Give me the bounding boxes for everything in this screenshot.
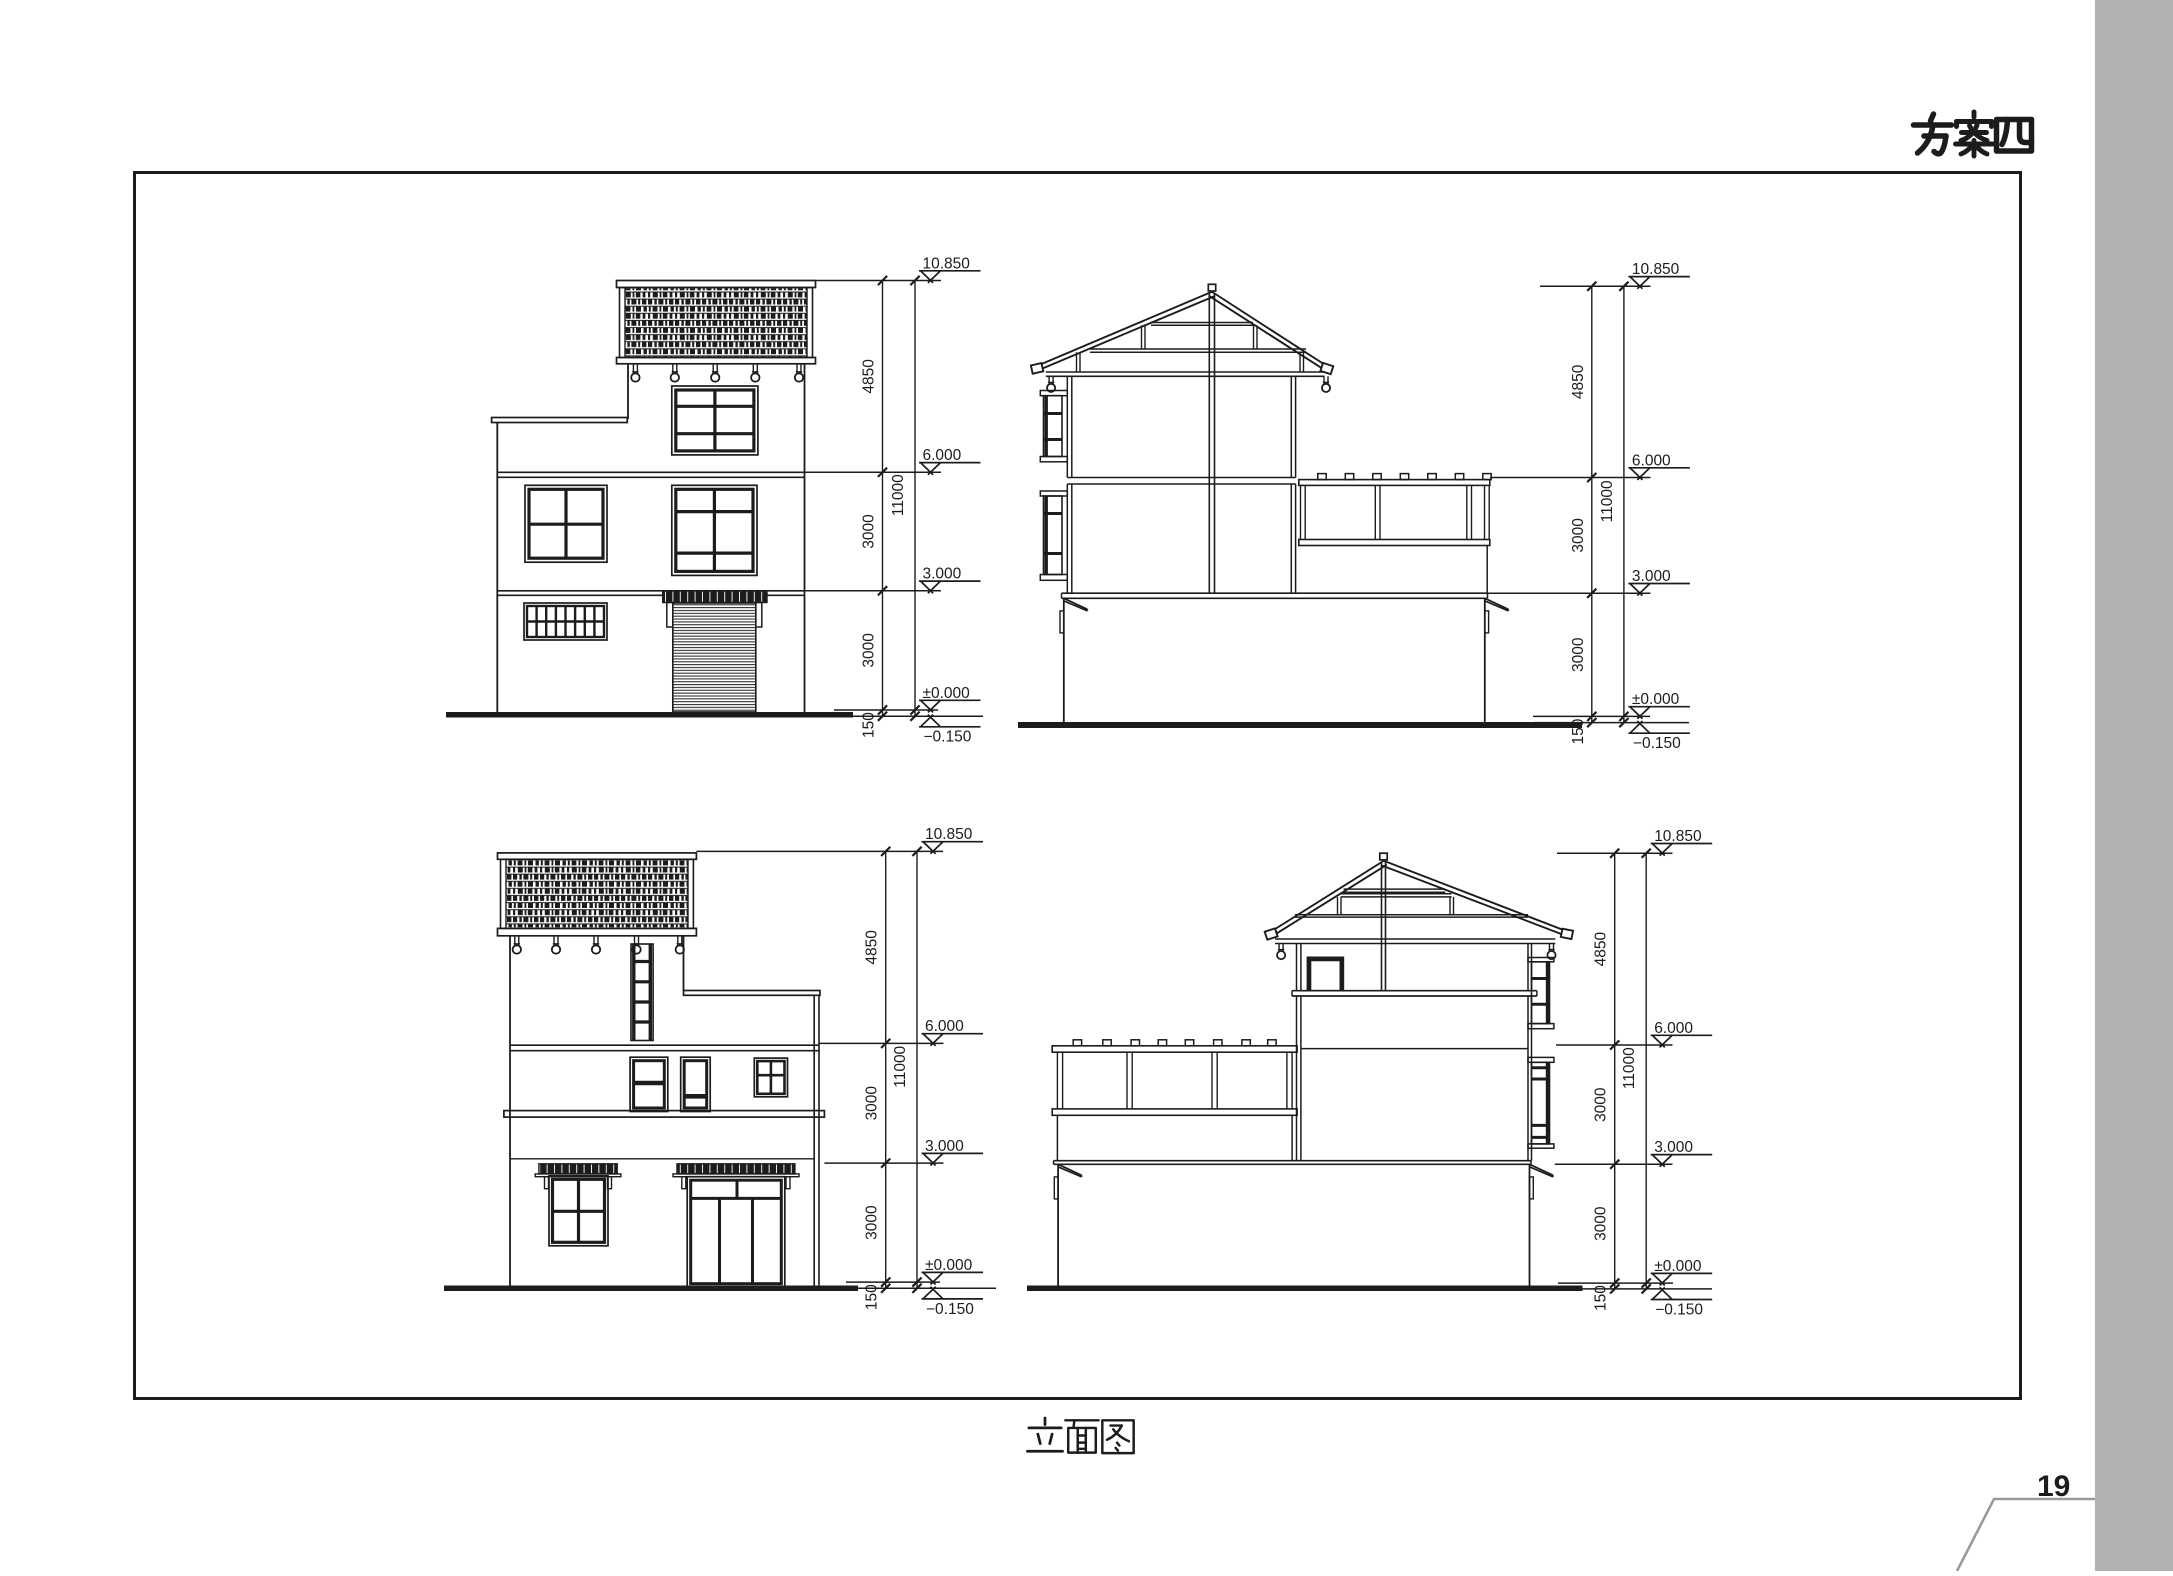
svg-text:6.000: 6.000 — [1632, 452, 1671, 469]
svg-text:−0.150: −0.150 — [1633, 735, 1681, 752]
svg-text:11000: 11000 — [890, 474, 907, 516]
svg-text:3000: 3000 — [864, 1205, 881, 1240]
svg-text:3000: 3000 — [861, 514, 878, 549]
svg-text:3000: 3000 — [1593, 1087, 1610, 1122]
svg-text:3000: 3000 — [1593, 1206, 1610, 1241]
svg-text:±0.000: ±0.000 — [925, 1257, 973, 1274]
svg-text:10.850: 10.850 — [1654, 828, 1702, 845]
svg-text:11000: 11000 — [1621, 1047, 1638, 1089]
svg-text:150: 150 — [861, 712, 878, 738]
svg-text:4850: 4850 — [861, 359, 878, 394]
svg-text:3.000: 3.000 — [1654, 1139, 1693, 1156]
svg-text:3.000: 3.000 — [1632, 568, 1671, 585]
svg-text:6.000: 6.000 — [1654, 1020, 1693, 1037]
svg-text:±0.000: ±0.000 — [1654, 1258, 1702, 1275]
svg-text:6.000: 6.000 — [923, 447, 962, 464]
svg-text:±0.000: ±0.000 — [1632, 691, 1680, 708]
svg-text:3000: 3000 — [1570, 637, 1587, 672]
svg-text:10.850: 10.850 — [925, 826, 973, 843]
svg-text:4850: 4850 — [1570, 364, 1587, 399]
svg-text:−0.150: −0.150 — [1655, 1301, 1703, 1318]
svg-text:4850: 4850 — [864, 930, 881, 965]
svg-text:3.000: 3.000 — [925, 1138, 964, 1155]
svg-text:−0.150: −0.150 — [924, 729, 972, 746]
svg-text:11000: 11000 — [1599, 480, 1616, 522]
svg-text:3.000: 3.000 — [923, 566, 962, 583]
svg-text:4850: 4850 — [1593, 931, 1610, 966]
svg-text:11000: 11000 — [892, 1045, 909, 1087]
svg-text:3000: 3000 — [861, 633, 878, 668]
svg-text:3000: 3000 — [864, 1086, 881, 1121]
svg-text:150: 150 — [864, 1284, 881, 1310]
svg-text:3000: 3000 — [1570, 518, 1587, 553]
svg-text:150: 150 — [1570, 718, 1587, 744]
svg-text:10.850: 10.850 — [1632, 261, 1680, 278]
svg-text:±0.000: ±0.000 — [923, 685, 971, 702]
svg-text:−0.150: −0.150 — [926, 1301, 974, 1318]
svg-text:6.000: 6.000 — [925, 1018, 964, 1035]
svg-text:150: 150 — [1593, 1285, 1610, 1311]
svg-text:10.850: 10.850 — [923, 255, 971, 272]
